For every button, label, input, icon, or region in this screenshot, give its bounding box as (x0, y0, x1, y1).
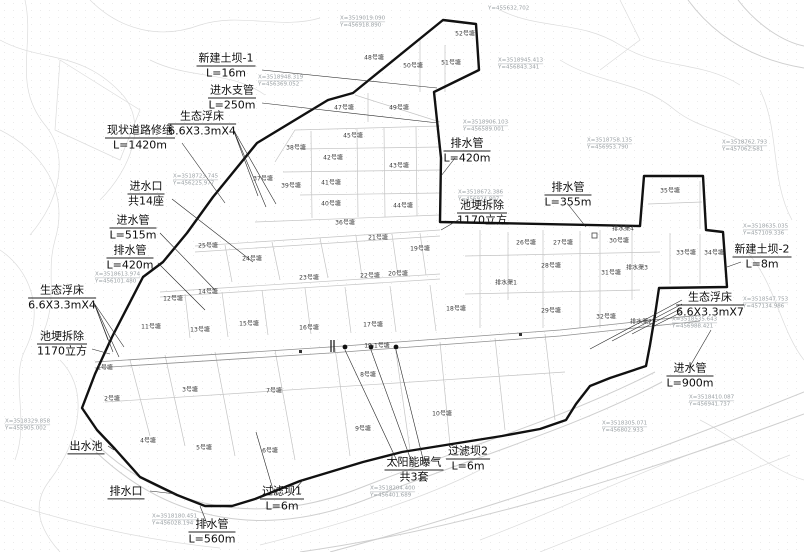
annotation-line-2: L=515m (109, 229, 156, 243)
pond-label: 1号塘 (97, 363, 113, 372)
pond-label: 14号塘 (198, 287, 218, 296)
coordinate-y: Y=456918.890 (340, 22, 385, 28)
annotation-line-2: L=6m (260, 500, 304, 514)
annotation-line-1: 进水口 (128, 180, 165, 195)
pond-label: 24号塘 (242, 254, 262, 263)
coordinate-x: X=3518945.413 (498, 57, 543, 64)
pond-label: 29号塘 (541, 306, 561, 315)
annotation-new-earth-dam-2: 新建土坝-2L=8m (733, 243, 792, 272)
annotation-line-2: L=560m (188, 533, 235, 547)
annotation-line-2: 6.6X3.3mX4 (28, 299, 96, 313)
annotation-solar-aeration: 太阳能曝气共3套 (385, 456, 444, 485)
annotation-line-1: 新建土坝-1 (197, 52, 256, 67)
culvert-mark (519, 333, 522, 336)
pond-label: 3号塘 (182, 385, 198, 394)
pond-label: 7号塘 (266, 386, 282, 395)
pump-house (592, 233, 597, 238)
culvert-mark (299, 350, 302, 353)
coordinate-y: Y=456369.052 (258, 81, 303, 87)
annotation-line-1: 排水管 (544, 181, 591, 196)
annotation-inlet-pipe-515: 进水管L=515m (109, 214, 156, 243)
sluice-mark (331, 340, 334, 352)
pond-label: 31号塘 (601, 268, 621, 277)
annotation-drain-pipe-420-right: 排水管L=420m (443, 137, 490, 166)
pond-label: 42号塘 (323, 153, 343, 162)
pond-label: 49号塘 (389, 103, 409, 112)
channel-label: 排水渠2 (630, 317, 652, 326)
coordinate-label: X=3518723.745Y=456225.977 (173, 173, 218, 186)
coordinate-x: X=3518410.087 (689, 394, 734, 401)
annotation-eco-floating-bed-top: 生态浮床6.6X3.3mX4 (168, 110, 236, 139)
annotation-line-1: 池埂拆除 (37, 330, 87, 345)
pond-label: 2号塘 (104, 394, 120, 403)
pond-label: 9号塘 (355, 424, 371, 433)
pond-label: 12号塘 (163, 294, 183, 303)
coordinate-label: X=3518945.413Y=456843.341 (498, 57, 543, 70)
pond-label: 27号塘 (553, 238, 573, 247)
pond-label: 33号塘 (676, 248, 696, 257)
pond-label: 45号塘 (343, 131, 363, 140)
coordinate-x: X=3518204.400 (370, 485, 415, 492)
annotation-line-1: 过滤坝2 (446, 445, 490, 460)
annotation-filter-dam-2: 过滤坝2L=6m (446, 445, 490, 474)
annotation-line-1: 进水支管 (208, 84, 256, 99)
pond-label: 41号塘 (321, 178, 341, 187)
pond-label: 22号塘 (360, 271, 380, 280)
annotation-filter-dam-1: 过滤坝1L=6m (260, 485, 304, 514)
annotation-line-1: 生态浮床 (676, 291, 744, 306)
coordinate-y: Y=456953.790 (587, 144, 632, 150)
coordinate-y: Y=456802.933 (602, 427, 647, 433)
pond-label: 26号塘 (516, 238, 536, 247)
annotation-line-1: 排水口 (108, 484, 145, 499)
coordinate-label: X=3518547.753Y=457134.986 (743, 296, 788, 309)
annotation-inlet-pipe-900: 进水管L=900m (666, 362, 713, 391)
pond-label: 16号塘 (299, 323, 319, 332)
pond-label: 13号塘 (190, 325, 210, 334)
pond-label: 40号塘 (321, 199, 341, 208)
pond-label: 5号塘 (196, 443, 212, 452)
annotation-line-2: L=8m (733, 258, 792, 272)
annotation-line-2: L=355m (544, 196, 591, 210)
channel-label: 排水渠3 (626, 263, 648, 272)
annotation-line-2: L=16m (197, 67, 256, 81)
pond-label: 43号塘 (389, 161, 409, 170)
annotation-line-1: 生态浮床 (168, 110, 236, 125)
coordinate-y: Y=455905.002 (5, 425, 50, 431)
coordinate-x: X=3518723.745 (173, 173, 218, 180)
annotation-line-1: 生态浮床 (28, 284, 96, 299)
coordinate-x: X=3518547.753 (743, 296, 788, 303)
coordinate-label: X=3518758.135Y=456953.790 (587, 137, 632, 150)
coordinate-x: X=3518305.071 (602, 420, 647, 427)
annotation-line-2: L=1420m (105, 139, 175, 153)
coordinate-label: X=3518906.103Y=456589.001 (463, 119, 508, 132)
pond-label: 8号塘 (360, 370, 376, 379)
annotation-inlet-branch-pipe: 进水支管L=250m (208, 84, 256, 113)
aeration-dot (343, 345, 348, 350)
annotation-line-2: 1170立方 (37, 345, 87, 359)
coordinate-label: X=3518613.974Y=456101.480 (95, 271, 140, 284)
pond-label: 39号塘 (281, 181, 301, 190)
annotation-existing-road-repair: 现状道路修缮L=1420m (105, 124, 175, 153)
annotation-line-2: L=420m (443, 152, 490, 166)
pond-label: 6号塘 (262, 446, 278, 455)
pond-label: 19号塘 (410, 244, 430, 253)
pond-label: 48号塘 (364, 53, 384, 62)
annotation-inlet-openings: 进水口共14座 (128, 180, 165, 209)
coordinate-y: Y=456225.977 (173, 180, 218, 186)
pond-label: 38号塘 (286, 143, 306, 152)
coordinate-label: X=3518204.400Y=456401.689 (370, 485, 415, 498)
annotation-pond-bank-demolition-right: 池埂拆除1170立方 (457, 199, 507, 228)
coordinate-x: X=3518948.319 (258, 74, 303, 81)
annotation-outlet-pool: 出水池 (68, 439, 105, 454)
annotation-pond-bank-demolition-left: 池埂拆除1170立方 (37, 330, 87, 359)
coordinate-y: Y=455632.702 (488, 5, 529, 11)
annotation-line-2: L=420m (106, 259, 153, 273)
pond-label: 32号塘 (596, 312, 616, 321)
annotation-eco-floating-bed-left: 生态浮床6.6X3.3mX4 (28, 284, 96, 313)
coordinate-x: X=3518635.035 (743, 223, 788, 230)
pond-label: 4号塘 (140, 436, 156, 445)
annotation-line-1: 太阳能曝气 (385, 456, 444, 471)
pond-label: 52号塘 (455, 29, 475, 38)
coordinate-label: X=3518329.858Y=455905.002 (5, 418, 50, 431)
annotation-line-1: 现状道路修缮 (105, 124, 175, 139)
pond-label: 50号塘 (403, 61, 423, 70)
pond-label: 36号塘 (335, 218, 355, 227)
pond-label: 20号塘 (388, 269, 408, 278)
coordinate-x: X=3518329.858 (5, 418, 50, 425)
point-features (299, 233, 597, 353)
annotation-line-1: 过滤坝1 (260, 485, 304, 500)
pond-label: 19-1号塘 (364, 341, 390, 350)
annotation-drain-pipe-420-left: 排水管L=420m (106, 244, 153, 273)
annotation-line-1: 池埂拆除 (457, 199, 507, 214)
coordinate-y: Y=457109.336 (743, 230, 788, 236)
pond-label: 47号塘 (334, 103, 354, 112)
pond-label: 15号塘 (239, 319, 259, 328)
coordinate-x: X=3518672.386 (458, 189, 503, 196)
coordinate-y: Y=456843.341 (498, 64, 543, 70)
annotation-line-1: 进水管 (666, 362, 713, 377)
coordinate-y: Y=457062.581 (722, 146, 767, 152)
coordinate-y: Y=456101.480 (95, 278, 140, 284)
coordinate-label: X=3519019.090Y=456918.890 (340, 15, 385, 28)
coordinate-label: X=3518948.319Y=456369.052 (258, 74, 303, 87)
pond-label: 44号塘 (393, 201, 413, 210)
pond-label: 21号塘 (368, 233, 388, 242)
coordinate-y: Y=457134.986 (743, 303, 788, 309)
annotation-drain-outlet: 排水口 (108, 484, 145, 499)
annotation-new-earth-dam-1: 新建土坝-1L=16m (197, 52, 256, 81)
annotation-line-2: 共14座 (128, 195, 165, 209)
coordinate-label: X=3518305.071Y=456802.933 (602, 420, 647, 433)
coordinate-label: X=3518762.793Y=457062.581 (722, 139, 767, 152)
coordinate-x: X=3518758.135 (587, 137, 632, 144)
pond-label: 35号塘 (660, 186, 680, 195)
pond-label: 30号塘 (609, 236, 629, 245)
annotation-drain-pipe-560: 排水管L=560m (188, 518, 235, 547)
pond-label: 10号塘 (432, 409, 452, 418)
annotation-line-2: L=900m (666, 377, 713, 391)
annotation-line-2: L=6m (446, 460, 490, 474)
annotation-line-2: 6.6X3.3mX4 (168, 125, 236, 139)
channel-label: 排水渠1 (495, 278, 517, 287)
pond-label: 34号塘 (704, 248, 724, 257)
site-plan-map: 1号塘2号塘3号塘4号塘5号塘6号塘7号塘8号塘9号塘10号塘11号塘12号塘1… (0, 0, 804, 552)
coordinate-y: Y=456401.689 (370, 492, 415, 498)
annotation-line-1: 进水管 (109, 214, 156, 229)
annotation-line-1: 出水池 (68, 439, 105, 454)
annotation-eco-floating-bed-right: 生态浮床6.6X3.3mX7 (676, 291, 744, 320)
annotation-line-2: 共3套 (385, 471, 444, 485)
pond-label: 37号塘 (253, 174, 273, 183)
coordinate-label: Y=455632.702 (488, 5, 529, 11)
pond-label: 23号塘 (299, 273, 319, 282)
annotation-line-1: 排水管 (106, 244, 153, 259)
channel-label: 排水渠4 (612, 224, 634, 233)
annotation-line-1: 排水管 (443, 137, 490, 152)
coordinate-x: X=3518762.793 (722, 139, 767, 146)
coordinate-label: X=3518635.035Y=457109.336 (743, 223, 788, 236)
pond-label: 17号塘 (363, 320, 383, 329)
annotation-line-1: 新建土坝-2 (733, 243, 792, 258)
coordinate-y: Y=456941.737 (689, 401, 734, 407)
aeration-dot (394, 345, 399, 350)
coordinate-x: X=3518906.103 (463, 119, 508, 126)
pond-label: 28号塘 (541, 261, 561, 270)
coordinate-y: Y=456988.421 (672, 323, 717, 329)
annotation-line-1: 排水管 (188, 518, 235, 533)
coordinate-label: X=3518410.087Y=456941.737 (689, 394, 734, 407)
pond-label: 25号塘 (198, 241, 218, 250)
pond-label: 18号塘 (446, 304, 466, 313)
annotation-line-2: 1170立方 (457, 214, 507, 228)
annotation-line-2: 6.6X3.3mX7 (676, 306, 744, 320)
pond-label: 11号塘 (141, 322, 161, 331)
coordinate-x: X=3519019.090 (340, 15, 385, 22)
coordinate-y: Y=456589.001 (463, 126, 508, 132)
annotation-drain-pipe-355: 排水管L=355m (544, 181, 591, 210)
pond-label: 51号塘 (441, 58, 461, 67)
